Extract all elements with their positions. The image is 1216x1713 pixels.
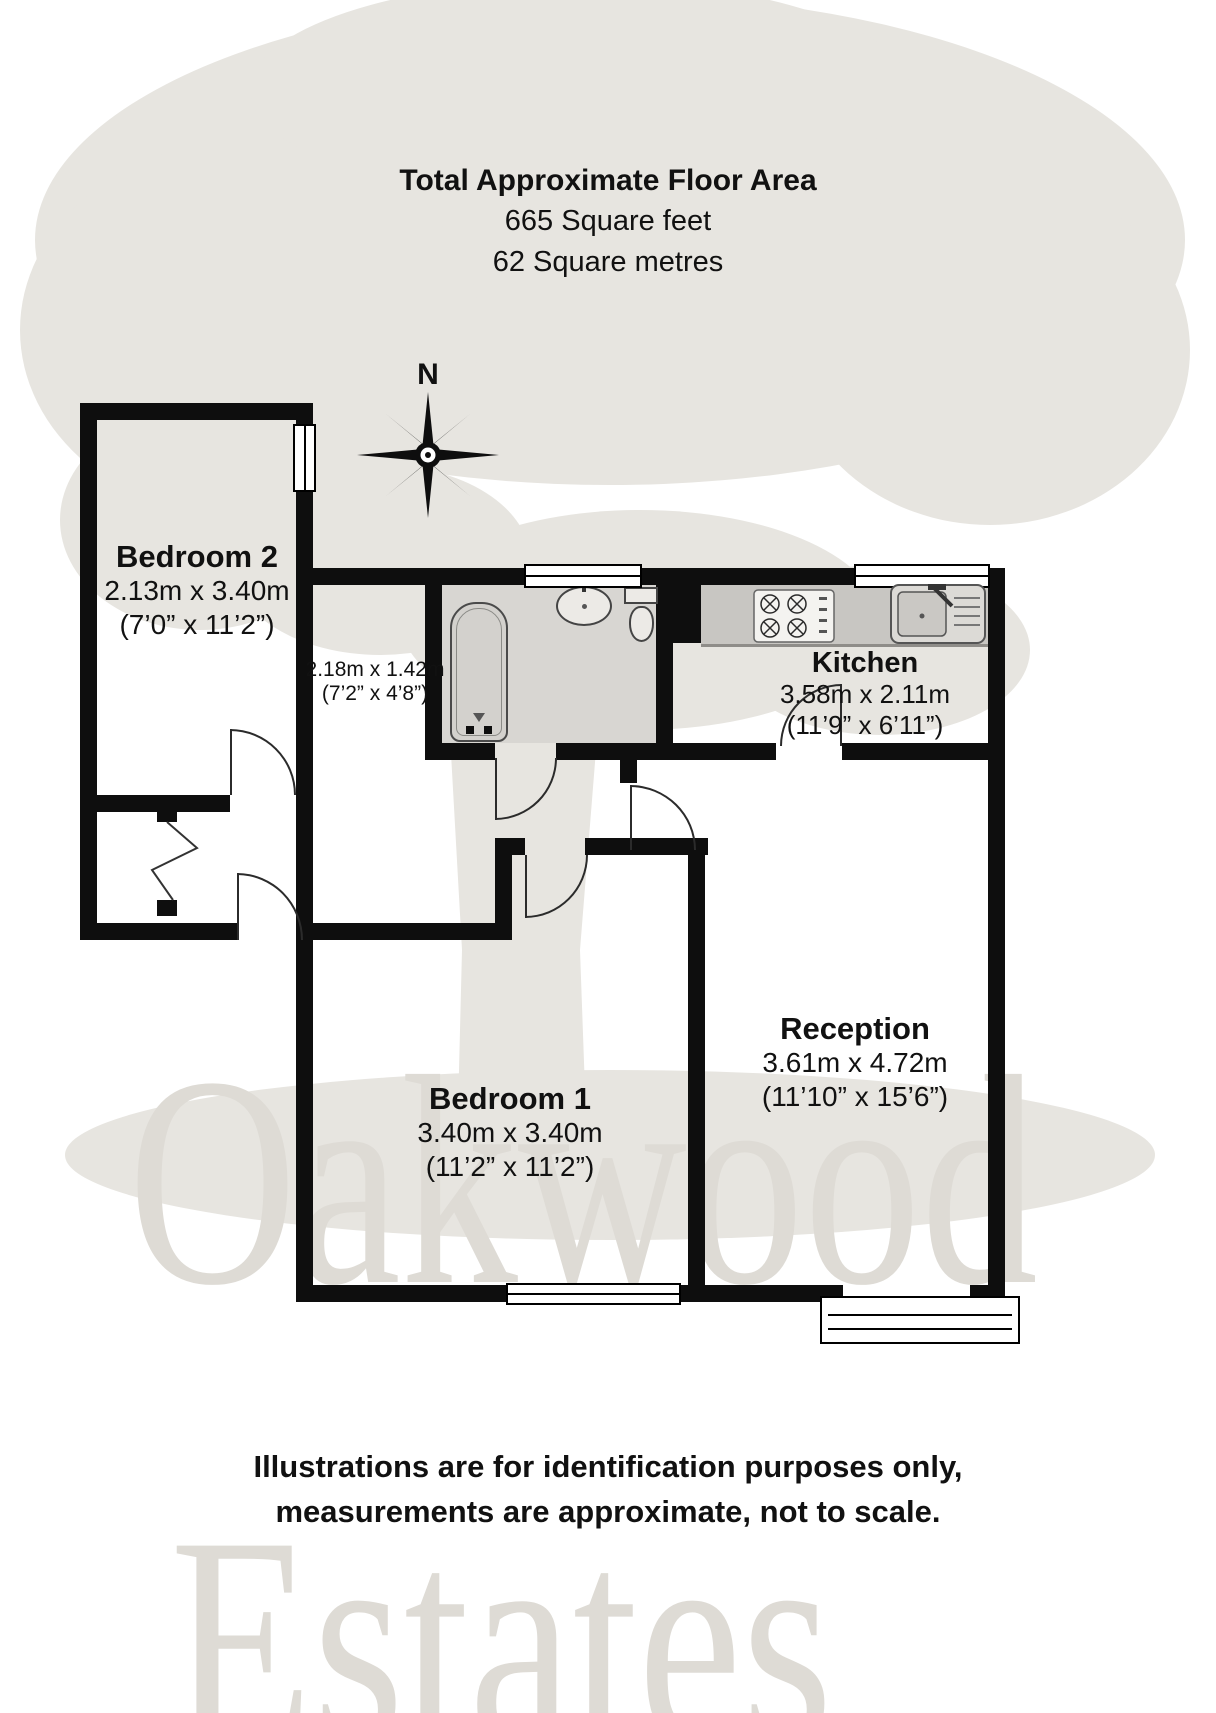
wall-bed1-reception-divider [688, 855, 705, 1302]
kitchen-sink-icon [890, 584, 986, 644]
disclaimer-line1: Illustrations are for identification pur… [0, 1444, 1216, 1489]
area-feet: 665 Square feet [0, 201, 1216, 242]
room-imperial: (11’9” x 6’11”) [745, 710, 985, 741]
bathtub [450, 602, 508, 742]
reception-bay-window [820, 1296, 1020, 1344]
wall-kitchen-bottom-a [656, 743, 776, 760]
bedroom2-window [293, 424, 316, 492]
area-metres: 62 Square metres [0, 242, 1216, 283]
wall-bath-kitchen-divider [656, 585, 673, 760]
bathtub-tap [466, 726, 474, 734]
room-metric: 2.13m x 3.40m [87, 574, 307, 608]
bathroom-window [524, 564, 642, 588]
bedroom1-label: Bedroom 1 3.40m x 3.40m (11’2” x 11’2”) [360, 1082, 660, 1184]
wall-bottom-b [679, 1285, 843, 1302]
wall-bedroom1-top [303, 923, 512, 940]
bedroom1-window [506, 1283, 681, 1305]
bedroom2-label: Bedroom 2 2.13m x 3.40m (7’0” x 11’2”) [87, 540, 307, 642]
cupboard-zigzag-icon [140, 800, 220, 930]
basin [556, 586, 612, 626]
room-name: Kitchen [745, 648, 985, 679]
room-name: Reception [710, 1012, 1000, 1046]
room-imperial: (11’10” x 15’6”) [710, 1080, 1000, 1114]
floorplan-page: Oakwood Estates Total Approximate Floor … [0, 0, 1216, 1713]
toilet-cistern [624, 587, 658, 604]
wall-center-step [495, 838, 512, 940]
wall-bottom-a [296, 1285, 508, 1302]
wall-spine-upper [296, 403, 313, 424]
kitchen-label: Kitchen 3.58m x 2.11m (11’9” x 6’11”) [745, 648, 985, 741]
hallway-label: 2.18m x 1.42m (7’2” x 4’8”) [300, 658, 450, 706]
disclaimer: Illustrations are for identification pur… [0, 1444, 1216, 1534]
wall-kitchen-bottom-b [842, 743, 1005, 760]
room-imperial: (7’0” x 11’2”) [87, 608, 307, 642]
wall-chimney-chunk [673, 585, 701, 643]
wall-right [988, 568, 1005, 1302]
compass-north-label: N [417, 358, 439, 391]
disclaimer-line2: measurements are approximate, not to sca… [0, 1489, 1216, 1534]
title-block: Total Approximate Floor Area 665 Square … [0, 160, 1216, 283]
hob-icon [753, 589, 835, 643]
wall-bedroom2-top [80, 403, 313, 420]
room-metric: 2.18m x 1.42m [300, 658, 450, 682]
room-metric: 3.40m x 3.40m [360, 1116, 660, 1150]
toilet-bowl [629, 606, 654, 642]
room-name: Bedroom 2 [87, 540, 307, 574]
compass-rose-icon: N [353, 352, 503, 522]
reception-label: Reception 3.61m x 4.72m (11’10” x 15’6”) [710, 1012, 1000, 1114]
wall-hall-east-stub [620, 743, 637, 783]
wall-bathroom-bottom-b [556, 743, 658, 760]
room-metric: 3.61m x 4.72m [710, 1046, 1000, 1080]
wall-left [80, 403, 97, 940]
room-metric: 3.58m x 2.11m [745, 679, 985, 710]
bathtub-tap [484, 726, 492, 734]
room-imperial: (11’2” x 11’2”) [360, 1150, 660, 1184]
wall-bathroom-bottom-a [425, 743, 495, 760]
room-name: Bedroom 1 [360, 1082, 660, 1116]
page-title: Total Approximate Floor Area [0, 160, 1216, 201]
bathtub-drain [473, 713, 485, 722]
wall-top-b [640, 568, 856, 585]
room-imperial: (7’2” x 4’8”) [300, 682, 450, 706]
wall-top-a [313, 568, 526, 585]
